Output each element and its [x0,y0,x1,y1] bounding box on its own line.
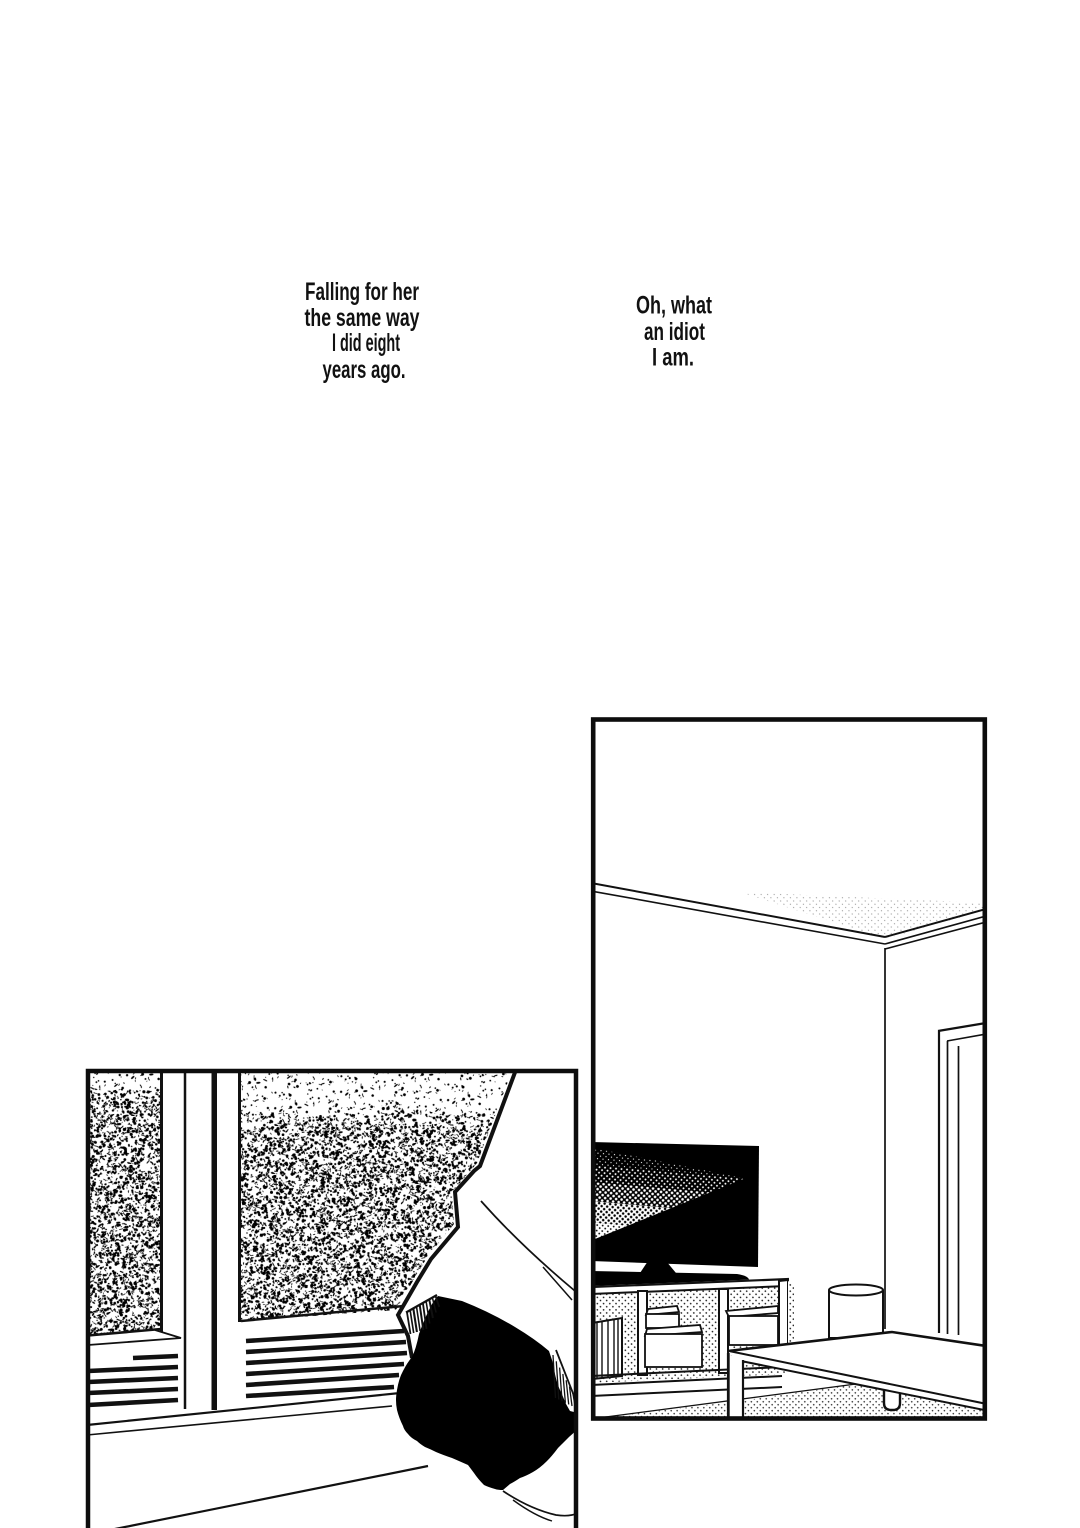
svg-text:an idiot: an idiot [644,318,705,346]
svg-text:years ago.: years ago. [323,356,406,384]
svg-text:the same way: the same way [305,304,420,332]
svg-text:I did eight: I did eight [332,329,400,357]
svg-text:Falling for her: Falling for her [305,278,419,306]
svg-text:Oh, what: Oh, what [636,292,712,320]
svg-text:I am.: I am. [652,344,694,372]
